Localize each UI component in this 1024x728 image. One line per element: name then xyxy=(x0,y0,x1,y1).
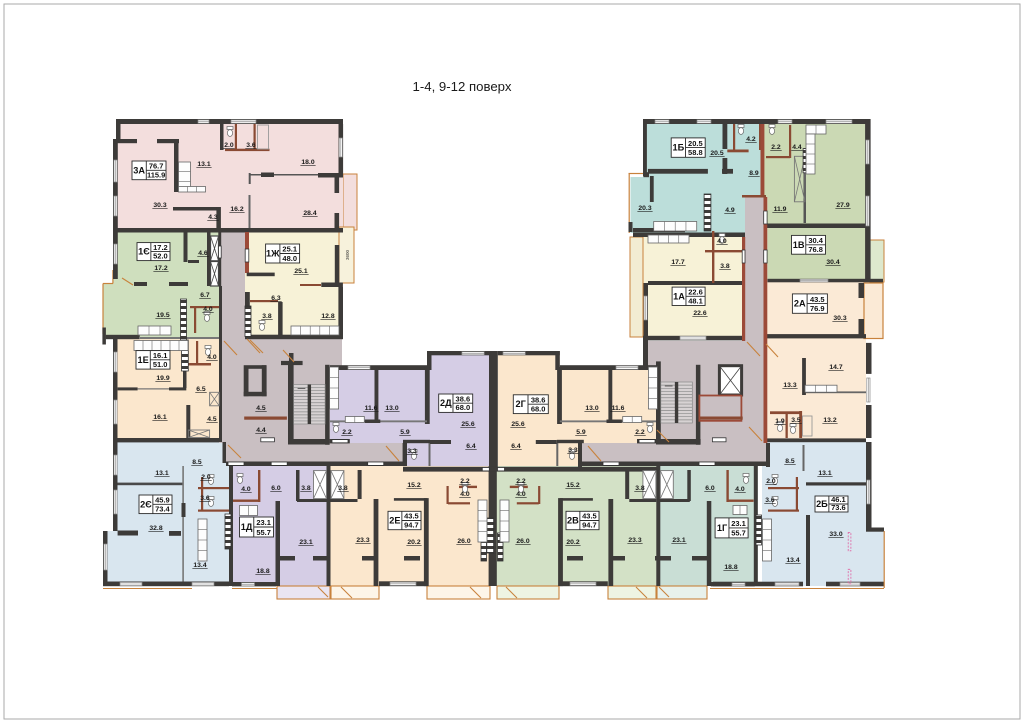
svg-text:52.0: 52.0 xyxy=(153,251,168,260)
svg-text:25.1: 25.1 xyxy=(294,268,307,275)
svg-text:48.1: 48.1 xyxy=(688,296,703,305)
svg-text:5.9: 5.9 xyxy=(400,429,410,436)
svg-text:2.2: 2.2 xyxy=(771,144,781,151)
svg-text:1Д: 1Д xyxy=(241,522,253,532)
svg-text:4.0: 4.0 xyxy=(516,491,526,498)
svg-text:6.3: 6.3 xyxy=(271,295,281,302)
svg-text:11.6: 11.6 xyxy=(365,405,378,412)
svg-text:6.7: 6.7 xyxy=(200,292,210,299)
svg-text:2.2: 2.2 xyxy=(342,429,352,436)
svg-text:1.9: 1.9 xyxy=(775,418,785,425)
svg-text:4.3: 4.3 xyxy=(208,214,218,221)
svg-text:30.4: 30.4 xyxy=(826,259,839,266)
svg-text:48.0: 48.0 xyxy=(282,254,297,263)
svg-text:115.9: 115.9 xyxy=(147,171,165,180)
svg-text:4.4: 4.4 xyxy=(256,427,266,434)
svg-text:3.8: 3.8 xyxy=(262,313,272,320)
svg-text:3.6: 3.6 xyxy=(765,497,775,504)
svg-text:6.0: 6.0 xyxy=(705,485,715,492)
svg-text:4.0: 4.0 xyxy=(460,491,470,498)
svg-text:4.0: 4.0 xyxy=(241,486,251,493)
svg-text:3.8: 3.8 xyxy=(635,485,645,492)
svg-text:38.6: 38.6 xyxy=(456,394,471,403)
svg-text:32.8: 32.8 xyxy=(149,525,162,532)
svg-text:3.6: 3.6 xyxy=(246,142,256,149)
svg-text:6.4: 6.4 xyxy=(511,443,521,450)
svg-text:76.8: 76.8 xyxy=(808,245,823,254)
svg-text:20.5: 20.5 xyxy=(688,139,703,148)
svg-text:8.9: 8.9 xyxy=(749,170,759,177)
svg-text:17.2: 17.2 xyxy=(154,265,167,272)
svg-text:19.9: 19.9 xyxy=(156,375,169,382)
svg-text:19.5: 19.5 xyxy=(156,312,169,319)
svg-text:18.0: 18.0 xyxy=(301,159,314,166)
svg-text:23.1: 23.1 xyxy=(256,518,271,527)
svg-text:43.5: 43.5 xyxy=(404,512,419,521)
svg-text:51.0: 51.0 xyxy=(153,360,168,369)
svg-text:6.4: 6.4 xyxy=(466,443,476,450)
svg-text:4.6: 4.6 xyxy=(198,250,208,257)
svg-text:68.0: 68.0 xyxy=(531,404,546,413)
svg-text:4.2: 4.2 xyxy=(746,136,756,143)
svg-text:15.2: 15.2 xyxy=(407,482,420,489)
svg-text:68.0: 68.0 xyxy=(456,403,471,412)
svg-text:30.3: 30.3 xyxy=(153,202,166,209)
svg-text:20.3: 20.3 xyxy=(638,205,651,212)
svg-text:58.8: 58.8 xyxy=(688,148,703,157)
svg-text:3600: 3600 xyxy=(345,249,350,260)
svg-text:13.0: 13.0 xyxy=(385,405,398,412)
svg-text:4.0: 4.0 xyxy=(207,354,217,361)
svg-text:11.6: 11.6 xyxy=(612,405,625,412)
svg-text:16.1: 16.1 xyxy=(153,414,166,421)
svg-text:13.1: 13.1 xyxy=(155,470,168,477)
svg-text:6.0: 6.0 xyxy=(271,485,281,492)
svg-text:2Д: 2Д xyxy=(440,398,452,408)
svg-text:45.9: 45.9 xyxy=(155,496,170,505)
svg-text:38.6: 38.6 xyxy=(531,395,546,404)
svg-text:22.6: 22.6 xyxy=(688,288,703,297)
svg-text:2.0: 2.0 xyxy=(766,478,776,485)
svg-text:3.8: 3.8 xyxy=(301,485,311,492)
svg-text:20.2: 20.2 xyxy=(407,539,420,546)
svg-text:17.7: 17.7 xyxy=(671,259,684,266)
svg-text:76.9: 76.9 xyxy=(810,304,825,313)
svg-text:1В: 1В xyxy=(793,240,805,250)
svg-text:26.0: 26.0 xyxy=(516,538,529,545)
svg-text:55.7: 55.7 xyxy=(256,528,271,537)
svg-text:20.5: 20.5 xyxy=(710,150,723,157)
svg-text:23.1: 23.1 xyxy=(672,537,685,544)
svg-text:2Е: 2Е xyxy=(389,516,400,526)
svg-text:25.6: 25.6 xyxy=(461,421,474,428)
svg-text:26.0: 26.0 xyxy=(457,538,470,545)
svg-text:94.7: 94.7 xyxy=(404,521,419,530)
svg-text:4.0: 4.0 xyxy=(735,486,745,493)
svg-text:13.1: 13.1 xyxy=(818,470,831,477)
svg-text:2.0: 2.0 xyxy=(201,474,211,481)
svg-text:23.3: 23.3 xyxy=(356,537,369,544)
svg-text:4.4: 4.4 xyxy=(792,144,802,151)
svg-text:2А: 2А xyxy=(794,299,806,309)
svg-text:16.2: 16.2 xyxy=(230,206,243,213)
svg-text:2Б: 2Б xyxy=(816,499,828,509)
svg-text:28.4: 28.4 xyxy=(303,210,316,217)
svg-text:13.2: 13.2 xyxy=(823,417,836,424)
svg-text:4.5: 4.5 xyxy=(256,405,266,412)
svg-text:23.1: 23.1 xyxy=(299,539,312,546)
svg-text:73.4: 73.4 xyxy=(155,504,170,513)
svg-text:3.3: 3.3 xyxy=(568,447,578,454)
svg-text:4.0: 4.0 xyxy=(717,238,727,245)
svg-text:8.5: 8.5 xyxy=(192,459,202,466)
svg-text:1-4, 9-12 поверх: 1-4, 9-12 поверх xyxy=(413,79,512,94)
svg-text:13.3: 13.3 xyxy=(783,382,796,389)
svg-text:8.5: 8.5 xyxy=(785,458,795,465)
svg-text:5.9: 5.9 xyxy=(576,429,586,436)
svg-text:30.4: 30.4 xyxy=(808,236,823,245)
svg-text:55.7: 55.7 xyxy=(731,529,746,538)
svg-text:22.6: 22.6 xyxy=(693,310,706,317)
svg-text:3.8: 3.8 xyxy=(338,485,348,492)
svg-text:3.3: 3.3 xyxy=(407,448,417,455)
svg-text:4.9: 4.9 xyxy=(725,207,735,214)
svg-text:2.2: 2.2 xyxy=(460,478,470,485)
svg-text:3.6: 3.6 xyxy=(200,495,210,502)
svg-text:76.7: 76.7 xyxy=(149,162,164,171)
svg-text:4.0: 4.0 xyxy=(203,306,213,313)
svg-text:33.0: 33.0 xyxy=(829,531,842,538)
svg-text:20.2: 20.2 xyxy=(566,539,579,546)
svg-text:16.1: 16.1 xyxy=(153,351,168,360)
svg-text:18.8: 18.8 xyxy=(256,568,269,575)
svg-text:2Г: 2Г xyxy=(515,399,526,409)
svg-text:43.5: 43.5 xyxy=(582,512,597,521)
svg-text:12.8: 12.8 xyxy=(321,313,334,320)
svg-text:30.3: 30.3 xyxy=(833,315,846,322)
svg-text:15.2: 15.2 xyxy=(566,482,579,489)
svg-text:25.1: 25.1 xyxy=(282,245,297,254)
svg-text:23.1: 23.1 xyxy=(731,519,746,528)
svg-text:1Є: 1Є xyxy=(138,247,150,257)
svg-text:1Е: 1Е xyxy=(138,355,149,365)
svg-text:13.4: 13.4 xyxy=(193,562,206,569)
svg-text:2.2: 2.2 xyxy=(635,429,645,436)
svg-text:11.9: 11.9 xyxy=(774,206,787,213)
svg-text:25.6: 25.6 xyxy=(511,421,524,428)
svg-text:43.5: 43.5 xyxy=(810,295,825,304)
svg-text:3А: 3А xyxy=(133,165,145,175)
svg-text:3.8: 3.8 xyxy=(720,263,730,270)
svg-text:94.7: 94.7 xyxy=(582,521,597,530)
svg-text:1Б: 1Б xyxy=(672,143,684,153)
svg-text:73.6: 73.6 xyxy=(831,503,846,512)
svg-text:1Ж: 1Ж xyxy=(266,249,280,259)
svg-text:3.5: 3.5 xyxy=(791,417,801,424)
svg-text:18.8: 18.8 xyxy=(724,564,737,571)
svg-text:27.9: 27.9 xyxy=(836,202,849,209)
svg-text:2.0: 2.0 xyxy=(224,142,234,149)
svg-text:23.3: 23.3 xyxy=(628,537,641,544)
svg-text:13.0: 13.0 xyxy=(585,405,598,412)
svg-text:14.7: 14.7 xyxy=(829,364,842,371)
svg-text:1А: 1А xyxy=(673,291,685,301)
svg-text:4.5: 4.5 xyxy=(207,416,217,423)
svg-text:13.4: 13.4 xyxy=(786,557,799,564)
svg-text:6.5: 6.5 xyxy=(196,386,206,393)
svg-text:13.1: 13.1 xyxy=(197,161,210,168)
svg-text:2.2: 2.2 xyxy=(516,478,526,485)
svg-text:2Є: 2Є xyxy=(140,499,152,509)
svg-text:1Г: 1Г xyxy=(717,523,728,533)
svg-text:2В: 2В xyxy=(567,516,579,526)
